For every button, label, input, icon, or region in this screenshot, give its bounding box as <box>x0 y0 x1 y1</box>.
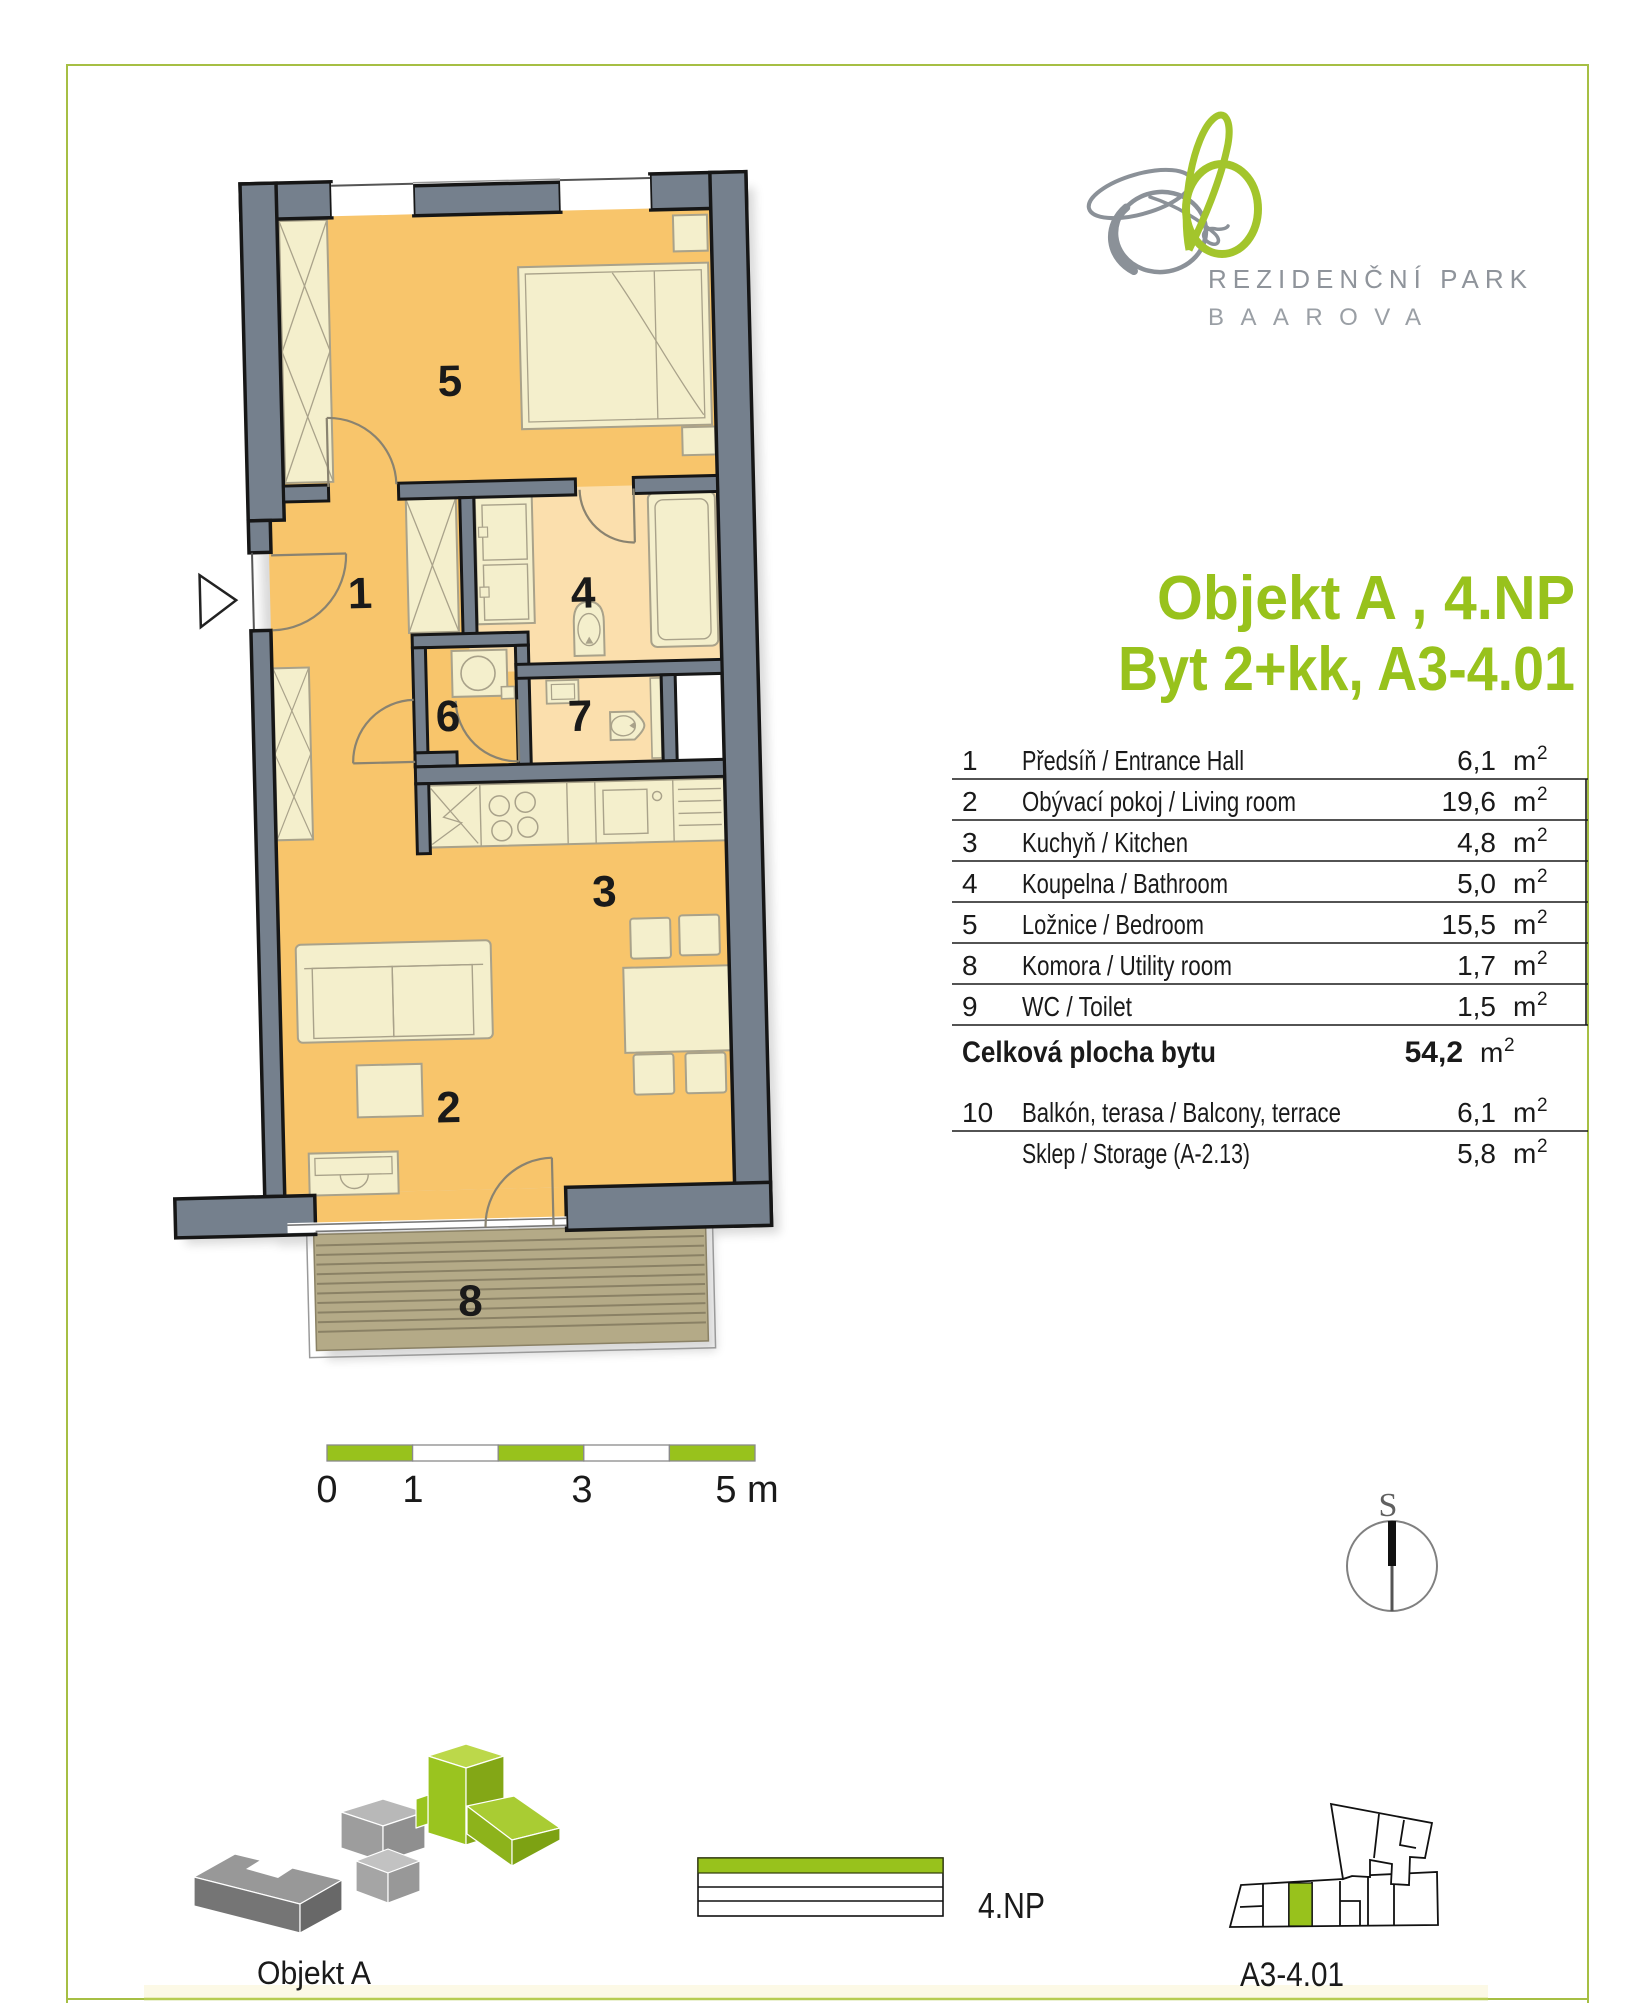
svg-text:WC / Toilet: WC / Toilet <box>1022 991 1132 1022</box>
svg-text:6: 6 <box>435 692 461 742</box>
svg-text:1: 1 <box>402 1469 423 1511</box>
svg-text:5 m: 5 m <box>715 1469 778 1511</box>
svg-text:5,8: 5,8 <box>1457 1138 1496 1169</box>
svg-text:m: m <box>1513 909 1536 940</box>
svg-text:2: 2 <box>962 786 978 817</box>
svg-text:m: m <box>1513 868 1536 899</box>
svg-text:9: 9 <box>962 991 978 1022</box>
svg-text:1: 1 <box>962 745 978 776</box>
svg-text:4: 4 <box>570 568 596 618</box>
svg-text:6,1: 6,1 <box>1457 745 1496 776</box>
svg-text:2: 2 <box>1537 825 1548 846</box>
svg-text:m: m <box>1513 950 1536 981</box>
svg-text:10: 10 <box>962 1097 993 1128</box>
svg-text:m: m <box>1513 1097 1536 1128</box>
svg-text:m: m <box>1513 745 1536 776</box>
svg-text:4: 4 <box>962 868 978 899</box>
svg-text:2: 2 <box>1504 1035 1515 1056</box>
svg-text:Celková plocha bytu: Celková plocha bytu <box>962 1036 1216 1069</box>
svg-text:19,6: 19,6 <box>1442 786 1497 817</box>
svg-text:2: 2 <box>436 1083 462 1133</box>
svg-text:1,7: 1,7 <box>1457 950 1496 981</box>
svg-text:Ložnice / Bedroom: Ložnice / Bedroom <box>1022 909 1204 940</box>
svg-text:Koupelna / Bathroom: Koupelna / Bathroom <box>1022 868 1228 899</box>
svg-text:m: m <box>1513 991 1536 1022</box>
svg-text:2: 2 <box>1537 743 1548 764</box>
svg-text:Byt 2+kk, A3-4.01: Byt 2+kk, A3-4.01 <box>1118 635 1575 704</box>
svg-text:m: m <box>1513 1138 1536 1169</box>
svg-text:5,0: 5,0 <box>1457 868 1496 899</box>
svg-text:15,5: 15,5 <box>1442 909 1497 940</box>
svg-text:2: 2 <box>1537 1095 1548 1116</box>
svg-text:Komora / Utility room: Komora / Utility room <box>1022 950 1232 981</box>
svg-text:m: m <box>1513 827 1536 858</box>
svg-text:5: 5 <box>437 357 463 407</box>
svg-text:3: 3 <box>592 867 618 917</box>
svg-text:Kuchyň / Kitchen: Kuchyň / Kitchen <box>1022 827 1188 858</box>
svg-text:8: 8 <box>458 1276 484 1326</box>
svg-text:Objekt A: Objekt A <box>257 1955 372 1991</box>
svg-text:Sklep / Storage (A-2.13): Sklep / Storage (A-2.13) <box>1022 1138 1250 1169</box>
svg-text:3: 3 <box>962 827 978 858</box>
svg-text:m: m <box>1513 786 1536 817</box>
svg-text:7: 7 <box>567 692 593 742</box>
svg-text:6,1: 6,1 <box>1457 1097 1496 1128</box>
svg-text:Objekt A , 4.NP: Objekt A , 4.NP <box>1157 564 1575 633</box>
svg-text:2: 2 <box>1537 948 1548 969</box>
svg-text:2: 2 <box>1537 866 1548 887</box>
svg-text:4.NP: 4.NP <box>978 1885 1045 1926</box>
svg-text:2: 2 <box>1537 989 1548 1010</box>
svg-text:1,5: 1,5 <box>1457 991 1496 1022</box>
svg-text:A3-4.01: A3-4.01 <box>1240 1956 1344 1994</box>
svg-text:4,8: 4,8 <box>1457 827 1496 858</box>
svg-text:3: 3 <box>571 1469 592 1511</box>
svg-text:1: 1 <box>347 569 373 619</box>
svg-text:0: 0 <box>316 1469 337 1511</box>
svg-text:5: 5 <box>962 909 978 940</box>
svg-text:2: 2 <box>1537 784 1548 805</box>
svg-text:Předsíň / Entrance Hall: Předsíň / Entrance Hall <box>1022 745 1244 776</box>
svg-text:2: 2 <box>1537 907 1548 928</box>
svg-text:S: S <box>1379 1487 1398 1524</box>
svg-text:Obývací pokoj / Living room: Obývací pokoj / Living room <box>1022 786 1296 817</box>
svg-text:Balkón, terasa / Balcony, terr: Balkón, terasa / Balcony, terrace <box>1022 1097 1341 1128</box>
svg-text:m: m <box>1480 1037 1503 1068</box>
svg-text:2: 2 <box>1537 1136 1548 1157</box>
svg-text:54,2: 54,2 <box>1405 1036 1463 1069</box>
svg-text:8: 8 <box>962 950 978 981</box>
